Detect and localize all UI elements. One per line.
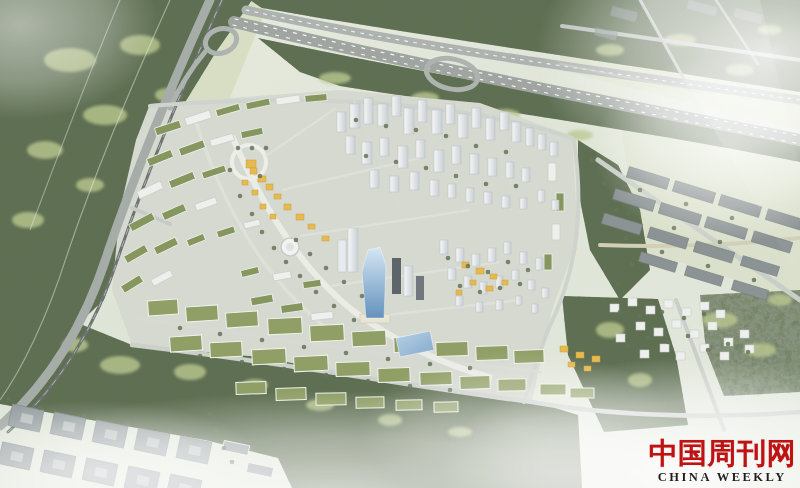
haze-layer	[0, 0, 800, 488]
rendering-canvas	[0, 0, 800, 488]
aerial-rendering: 中国周刊网 CHINA WEEKLY	[0, 0, 800, 488]
